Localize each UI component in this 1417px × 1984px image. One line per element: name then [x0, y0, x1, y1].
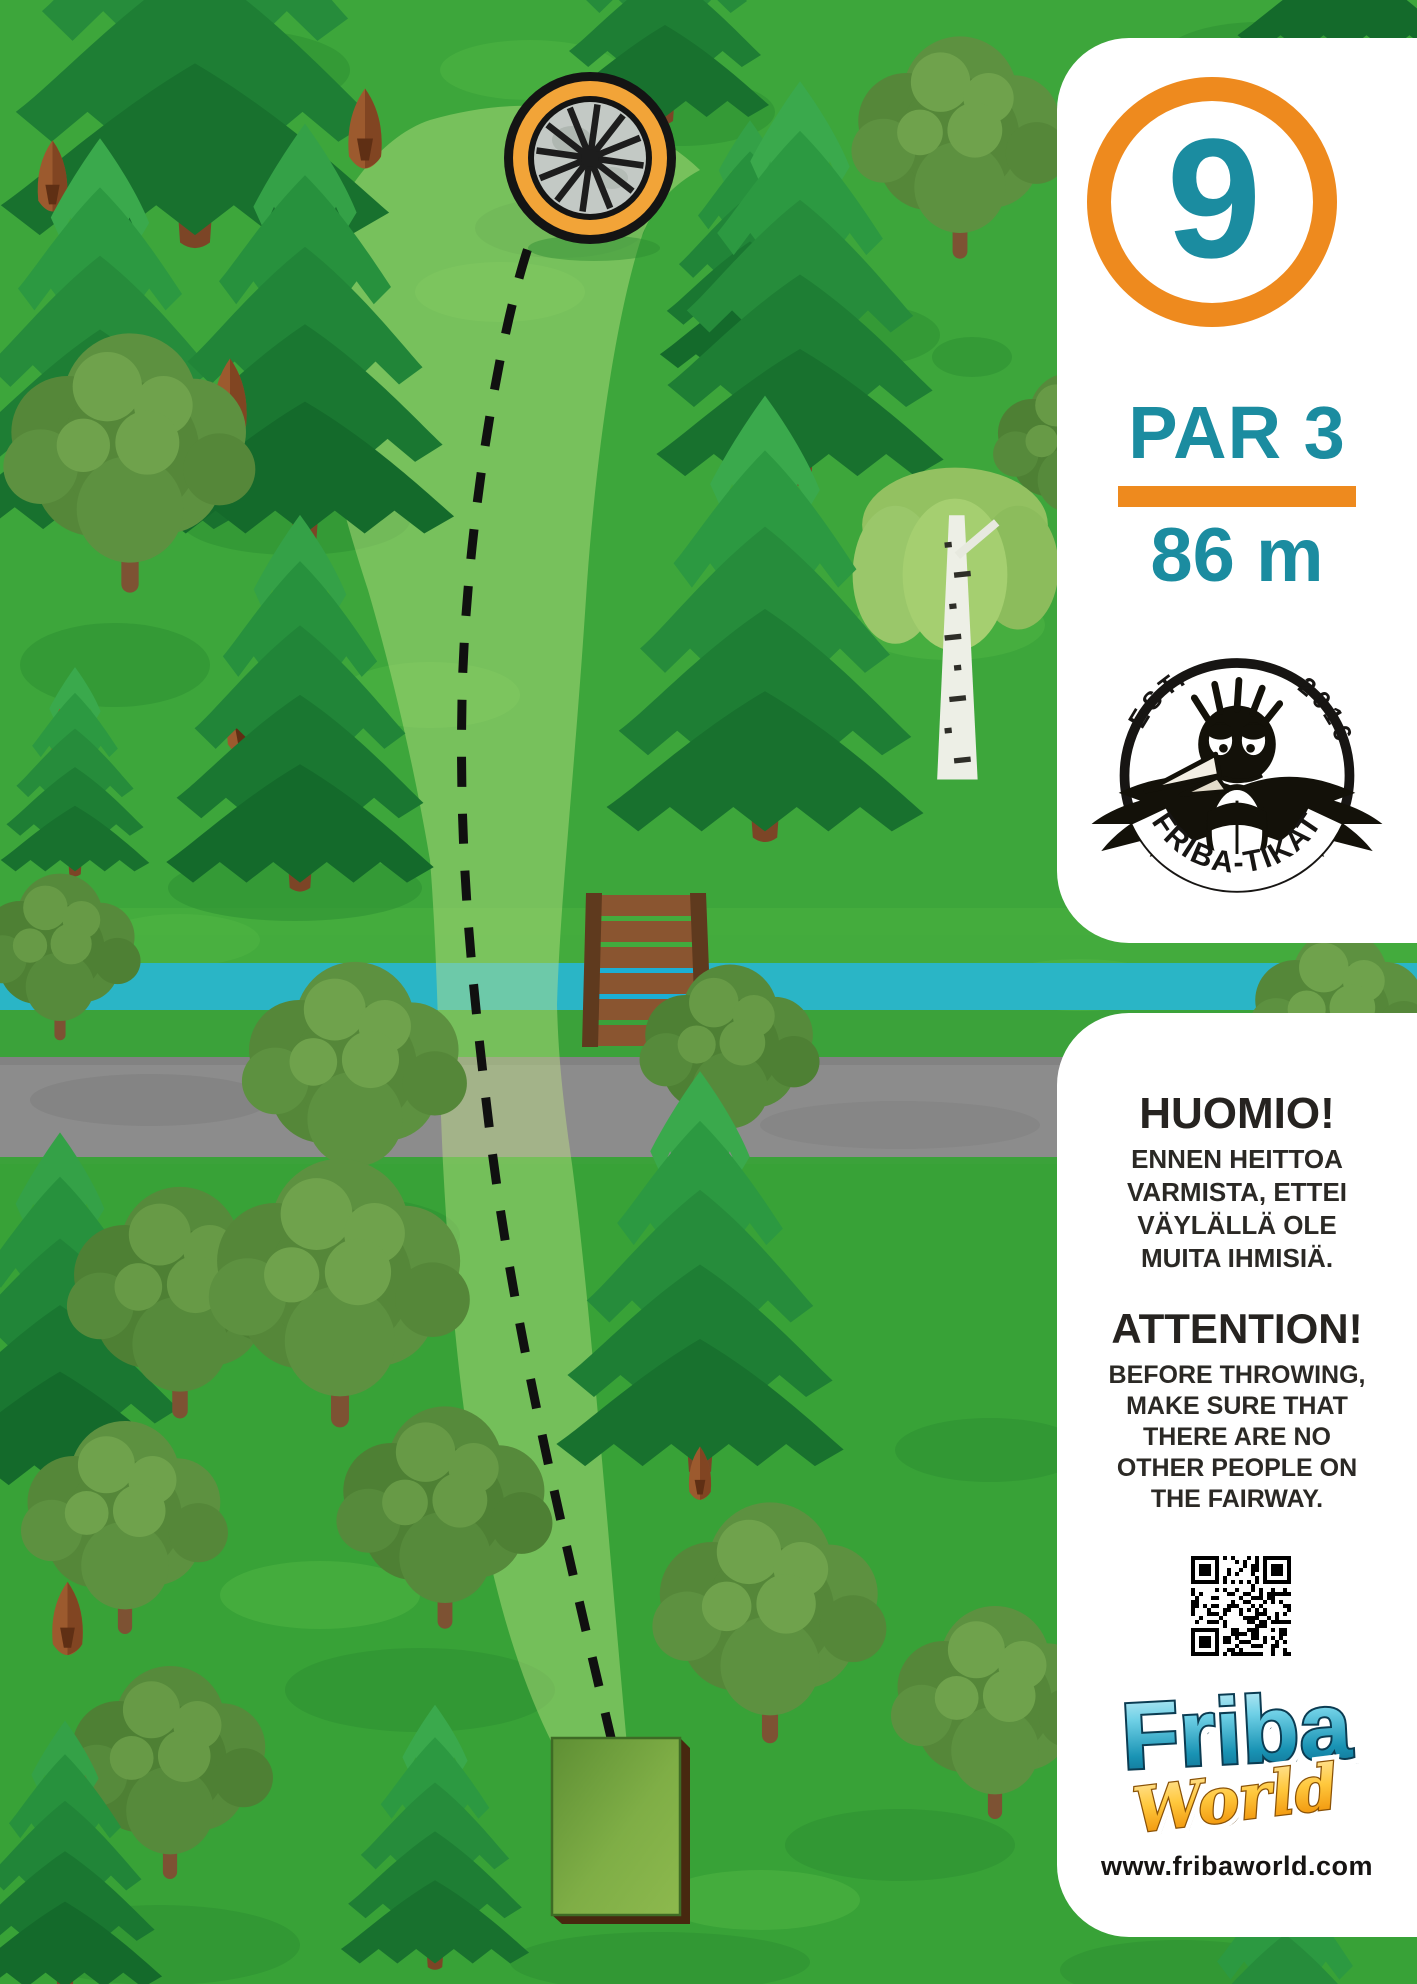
- notice-line-en: OTHER PEOPLE ON: [1057, 1453, 1417, 1484]
- notice-line-fi: VÄYLÄLLÄ OLE: [1057, 1209, 1417, 1242]
- notice-line-en: THERE ARE NO: [1057, 1422, 1417, 1453]
- hole-info-card: 9 PAR 3 86 m: [1057, 38, 1417, 943]
- notice-heading-fi: HUOMIO!: [1057, 1089, 1417, 1139]
- hole-map-poster: 9 PAR 3 86 m: [0, 0, 1417, 1984]
- notice-line-en: MAKE SURE THAT: [1057, 1391, 1417, 1422]
- hole-number-badge: 9: [1087, 77, 1337, 327]
- hole-number: 9: [1167, 114, 1258, 284]
- distance-label: 86 m: [1057, 512, 1417, 599]
- divider-rule: [1118, 486, 1356, 507]
- notice-line-en: THE FAIRWAY.: [1057, 1484, 1417, 1515]
- qr-code: [1191, 1556, 1291, 1656]
- notice-line-fi: VARMISTA, ETTEI: [1057, 1176, 1417, 1209]
- notice-line-en: BEFORE THROWING,: [1057, 1360, 1417, 1391]
- website-url: www.fribaworld.com: [1057, 1851, 1417, 1882]
- notice-heading-en: ATTENTION!: [1057, 1305, 1417, 1353]
- notice-line-fi: MUITA IHMISIÄ.: [1057, 1242, 1417, 1275]
- par-label: PAR 3: [1057, 390, 1417, 475]
- tee-pad: [552, 1738, 690, 1924]
- club-badge-logo: EST. 2016 FRIBA-TIKAT: [1057, 630, 1417, 950]
- notice-line-fi: ENNEN HEITTOA: [1057, 1143, 1417, 1176]
- notice-card: HUOMIO! ENNEN HEITTOA VARMISTA, ETTEI VÄ…: [1057, 1013, 1417, 1937]
- friba-world-logo: Friba Friba Friba World World World: [1075, 1673, 1399, 1853]
